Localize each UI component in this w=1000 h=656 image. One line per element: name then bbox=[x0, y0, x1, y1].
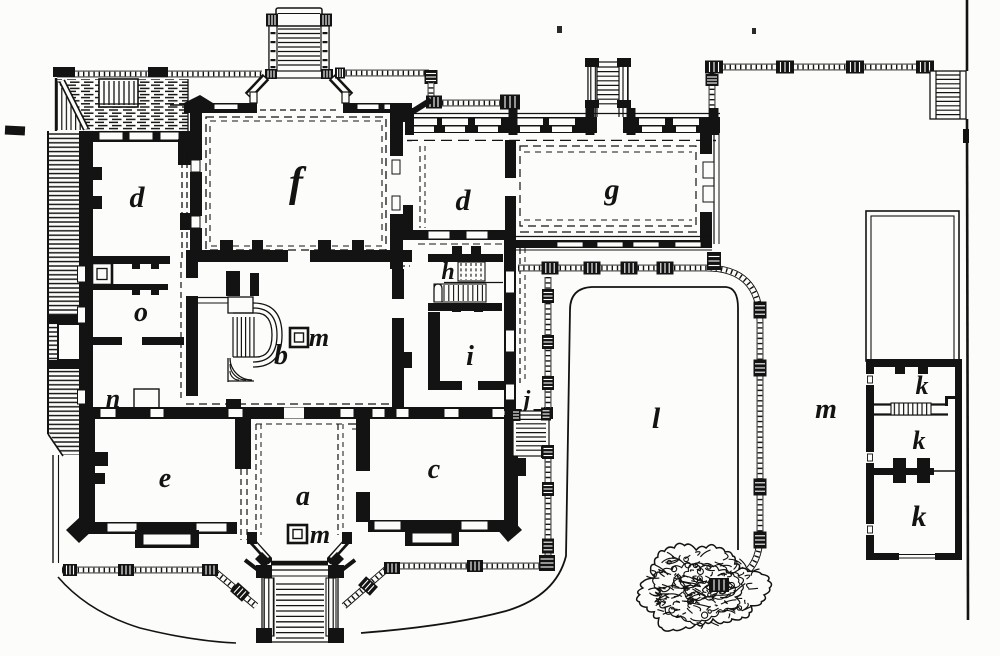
svg-text:m: m bbox=[309, 323, 329, 352]
svg-text:o: o bbox=[134, 297, 148, 328]
svg-text:h: h bbox=[441, 259, 454, 285]
svg-text:d: d bbox=[456, 184, 472, 217]
svg-text:m: m bbox=[310, 520, 330, 549]
svg-text:k: k bbox=[916, 371, 929, 400]
svg-text:d: d bbox=[130, 181, 146, 214]
svg-text:g: g bbox=[604, 173, 620, 206]
svg-text:k: k bbox=[913, 426, 926, 455]
svg-text:e: e bbox=[159, 463, 171, 494]
svg-text:a: a bbox=[296, 481, 310, 512]
svg-text:i: i bbox=[466, 341, 474, 372]
svg-text:k: k bbox=[912, 500, 927, 533]
svg-text:m: m bbox=[815, 394, 837, 425]
svg-text:c: c bbox=[428, 454, 441, 485]
svg-text:l: l bbox=[652, 402, 661, 435]
